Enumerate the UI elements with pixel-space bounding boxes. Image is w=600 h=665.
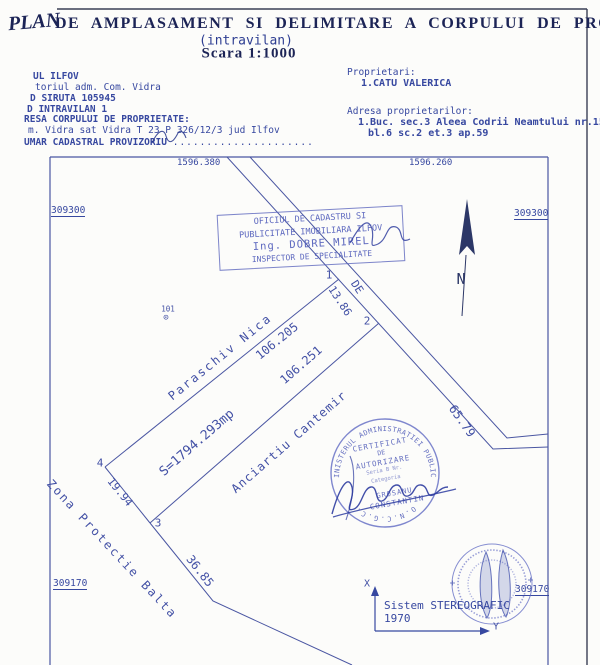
axis-x-label: X	[364, 579, 370, 590]
title-scale: Scara 1:1000	[202, 46, 297, 63]
point-4: 4	[97, 457, 104, 470]
road-upper-line	[250, 157, 548, 438]
grid-label-top-left: 1596.380	[177, 158, 220, 168]
point-code-symbol: ⊙	[163, 313, 168, 323]
round-stamp-2-star-right	[528, 578, 533, 583]
coord-system-line2: 1970	[384, 612, 411, 625]
length-4-3: 19.94	[105, 475, 136, 509]
round-stamp-2-star-left	[450, 581, 455, 586]
north-arrow-icon	[459, 199, 475, 255]
axis-y-arrow	[480, 627, 490, 635]
owner-name: 1.CATU VALERICA	[361, 78, 451, 89]
cadastral-number-label: UMAR CADASTRAL PROVIZORIU ..............…	[24, 137, 314, 148]
length-3-south: 36.85	[183, 552, 216, 589]
cadastral-plan-page: PLAN DE AMPLASAMENT SI DELIMITARE A CORP…	[0, 0, 600, 665]
length-road: 65.79	[446, 402, 478, 440]
title-handwritten-plan: PLAN	[7, 9, 61, 36]
grid-label-top-right: 1596.260	[409, 158, 452, 168]
county-line: UL ILFOV	[33, 71, 79, 82]
north-letter: N	[456, 270, 465, 288]
boundary-1-4	[105, 279, 339, 467]
grid-label-left-lower: 309170	[53, 578, 87, 590]
cadastral-number-dots: .....................	[173, 137, 314, 148]
length-2-3: 106.251	[277, 343, 324, 387]
office-stamp: OFICIUL DE CADASTRU SI PUBLICITATE IMOBI…	[217, 205, 406, 271]
boundary-3-south	[150, 523, 352, 665]
axis-y-label: Y	[493, 622, 499, 633]
owners-address-label: Adresa proprietarilor:	[347, 106, 473, 117]
point-2: 2	[364, 315, 371, 328]
point-3: 3	[155, 517, 162, 530]
axis-x-arrow	[371, 586, 379, 596]
property-address-value: m. Vidra sat Vidra T 23 P 326/12/3 jud I…	[28, 125, 280, 136]
territory-line: toriul adm. Com. Vidra	[35, 82, 161, 93]
cadastral-number-text: UMAR CADASTRAL PROVIZORIU	[24, 137, 167, 148]
grid-label-right-upper: 309300	[514, 208, 548, 220]
owner-address-2: bl.6 sc.2 et.3 ap.59	[368, 128, 488, 139]
grid-label-right-lower: 309170	[515, 584, 549, 596]
road-lower-line	[227, 157, 548, 449]
neighbor-west: Zona Protectie Balta	[44, 477, 180, 621]
round-stamp-1-center: CERTIFICAT DE AUTORIZARE Seria B Nr. Cat…	[325, 430, 445, 517]
point-1: 1	[326, 269, 333, 282]
grid-label-left-upper: 309300	[51, 205, 85, 217]
page-title: DE AMPLASAMENT SI DELIMITARE A CORPULUI …	[55, 15, 583, 33]
property-address-label: RESA CORPULUI DE PROPRIETATE:	[24, 114, 190, 125]
owners-label: Proprietari:	[347, 67, 416, 78]
area-label: S=1794.293mp	[157, 407, 238, 480]
road-label: DE	[348, 278, 366, 296]
coord-system-line1: Sistem STEREOGRAFIC	[384, 599, 510, 612]
owner-address-1: 1.Buc. sec.3 Aleea Codrii Neamtului nr.1…	[358, 117, 600, 128]
siruta-line: D SIRUTA 105945	[30, 93, 116, 104]
